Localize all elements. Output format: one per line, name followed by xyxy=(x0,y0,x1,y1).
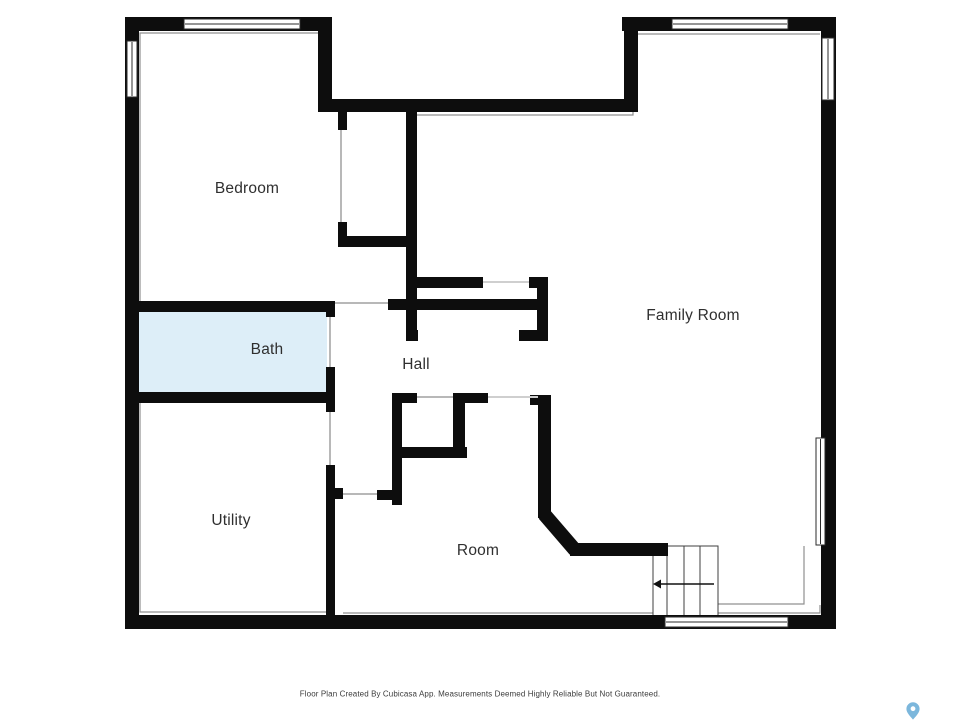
room-label-family-room: Family Room xyxy=(646,307,740,325)
room-label-utility: Utility xyxy=(211,512,250,530)
room-label-bedroom: Bedroom xyxy=(215,180,279,198)
bath-floor-area xyxy=(135,306,327,398)
inner-face-line-4 xyxy=(140,403,326,612)
floor-plan-svg xyxy=(0,0,960,720)
wall-room-closet-south xyxy=(402,447,467,458)
wall-hall-south-wall xyxy=(388,299,545,310)
wall-west-wall xyxy=(125,17,139,629)
wall-bath-door-jamb-north xyxy=(326,301,335,317)
footer-disclaimer: Floor Plan Created By Cubicasa App. Meas… xyxy=(300,690,660,699)
cubicasa-pin-icon xyxy=(903,699,923,720)
wall-room-diagonal xyxy=(544,514,575,550)
room-label-hall: Hall xyxy=(402,356,430,374)
wall-corridor-south-stub xyxy=(377,490,402,500)
inner-face-line-2 xyxy=(718,546,804,604)
wall-corridor-north-stub xyxy=(392,393,417,403)
wall-closet-west-jamb-north xyxy=(338,112,347,130)
inner-face-line-3 xyxy=(718,605,820,613)
wall-room-closet-east xyxy=(453,393,465,453)
wall-family-west-upper xyxy=(624,17,638,112)
wall-bedroom-east-upper xyxy=(318,17,332,112)
wall-recessed-top-wall xyxy=(318,99,638,112)
wall-utility-door-jamb xyxy=(326,488,343,499)
wall-divider-foot-stub xyxy=(406,330,418,341)
wall-hall-north-wall xyxy=(412,277,483,288)
wall-bath-east-wall xyxy=(326,367,335,412)
room-label-bath: Bath xyxy=(251,341,284,359)
wall-stair-north-wall xyxy=(570,543,668,556)
inner-face-line-0 xyxy=(140,33,331,301)
floor-plan-canvas: BedroomBathHallFamily RoomUtilityRoom Fl… xyxy=(0,0,960,720)
staircase-box xyxy=(653,546,718,617)
room-label-room: Room xyxy=(457,542,499,560)
wall-closet-south-wall xyxy=(338,236,416,247)
wall-room-east-wall xyxy=(538,395,551,518)
wall-corridor-west-wall xyxy=(392,393,402,505)
wall-bath-north-wall xyxy=(125,301,335,312)
wall-family-entry-jamb-south xyxy=(519,330,548,341)
wall-bath-south-wall xyxy=(125,392,335,403)
